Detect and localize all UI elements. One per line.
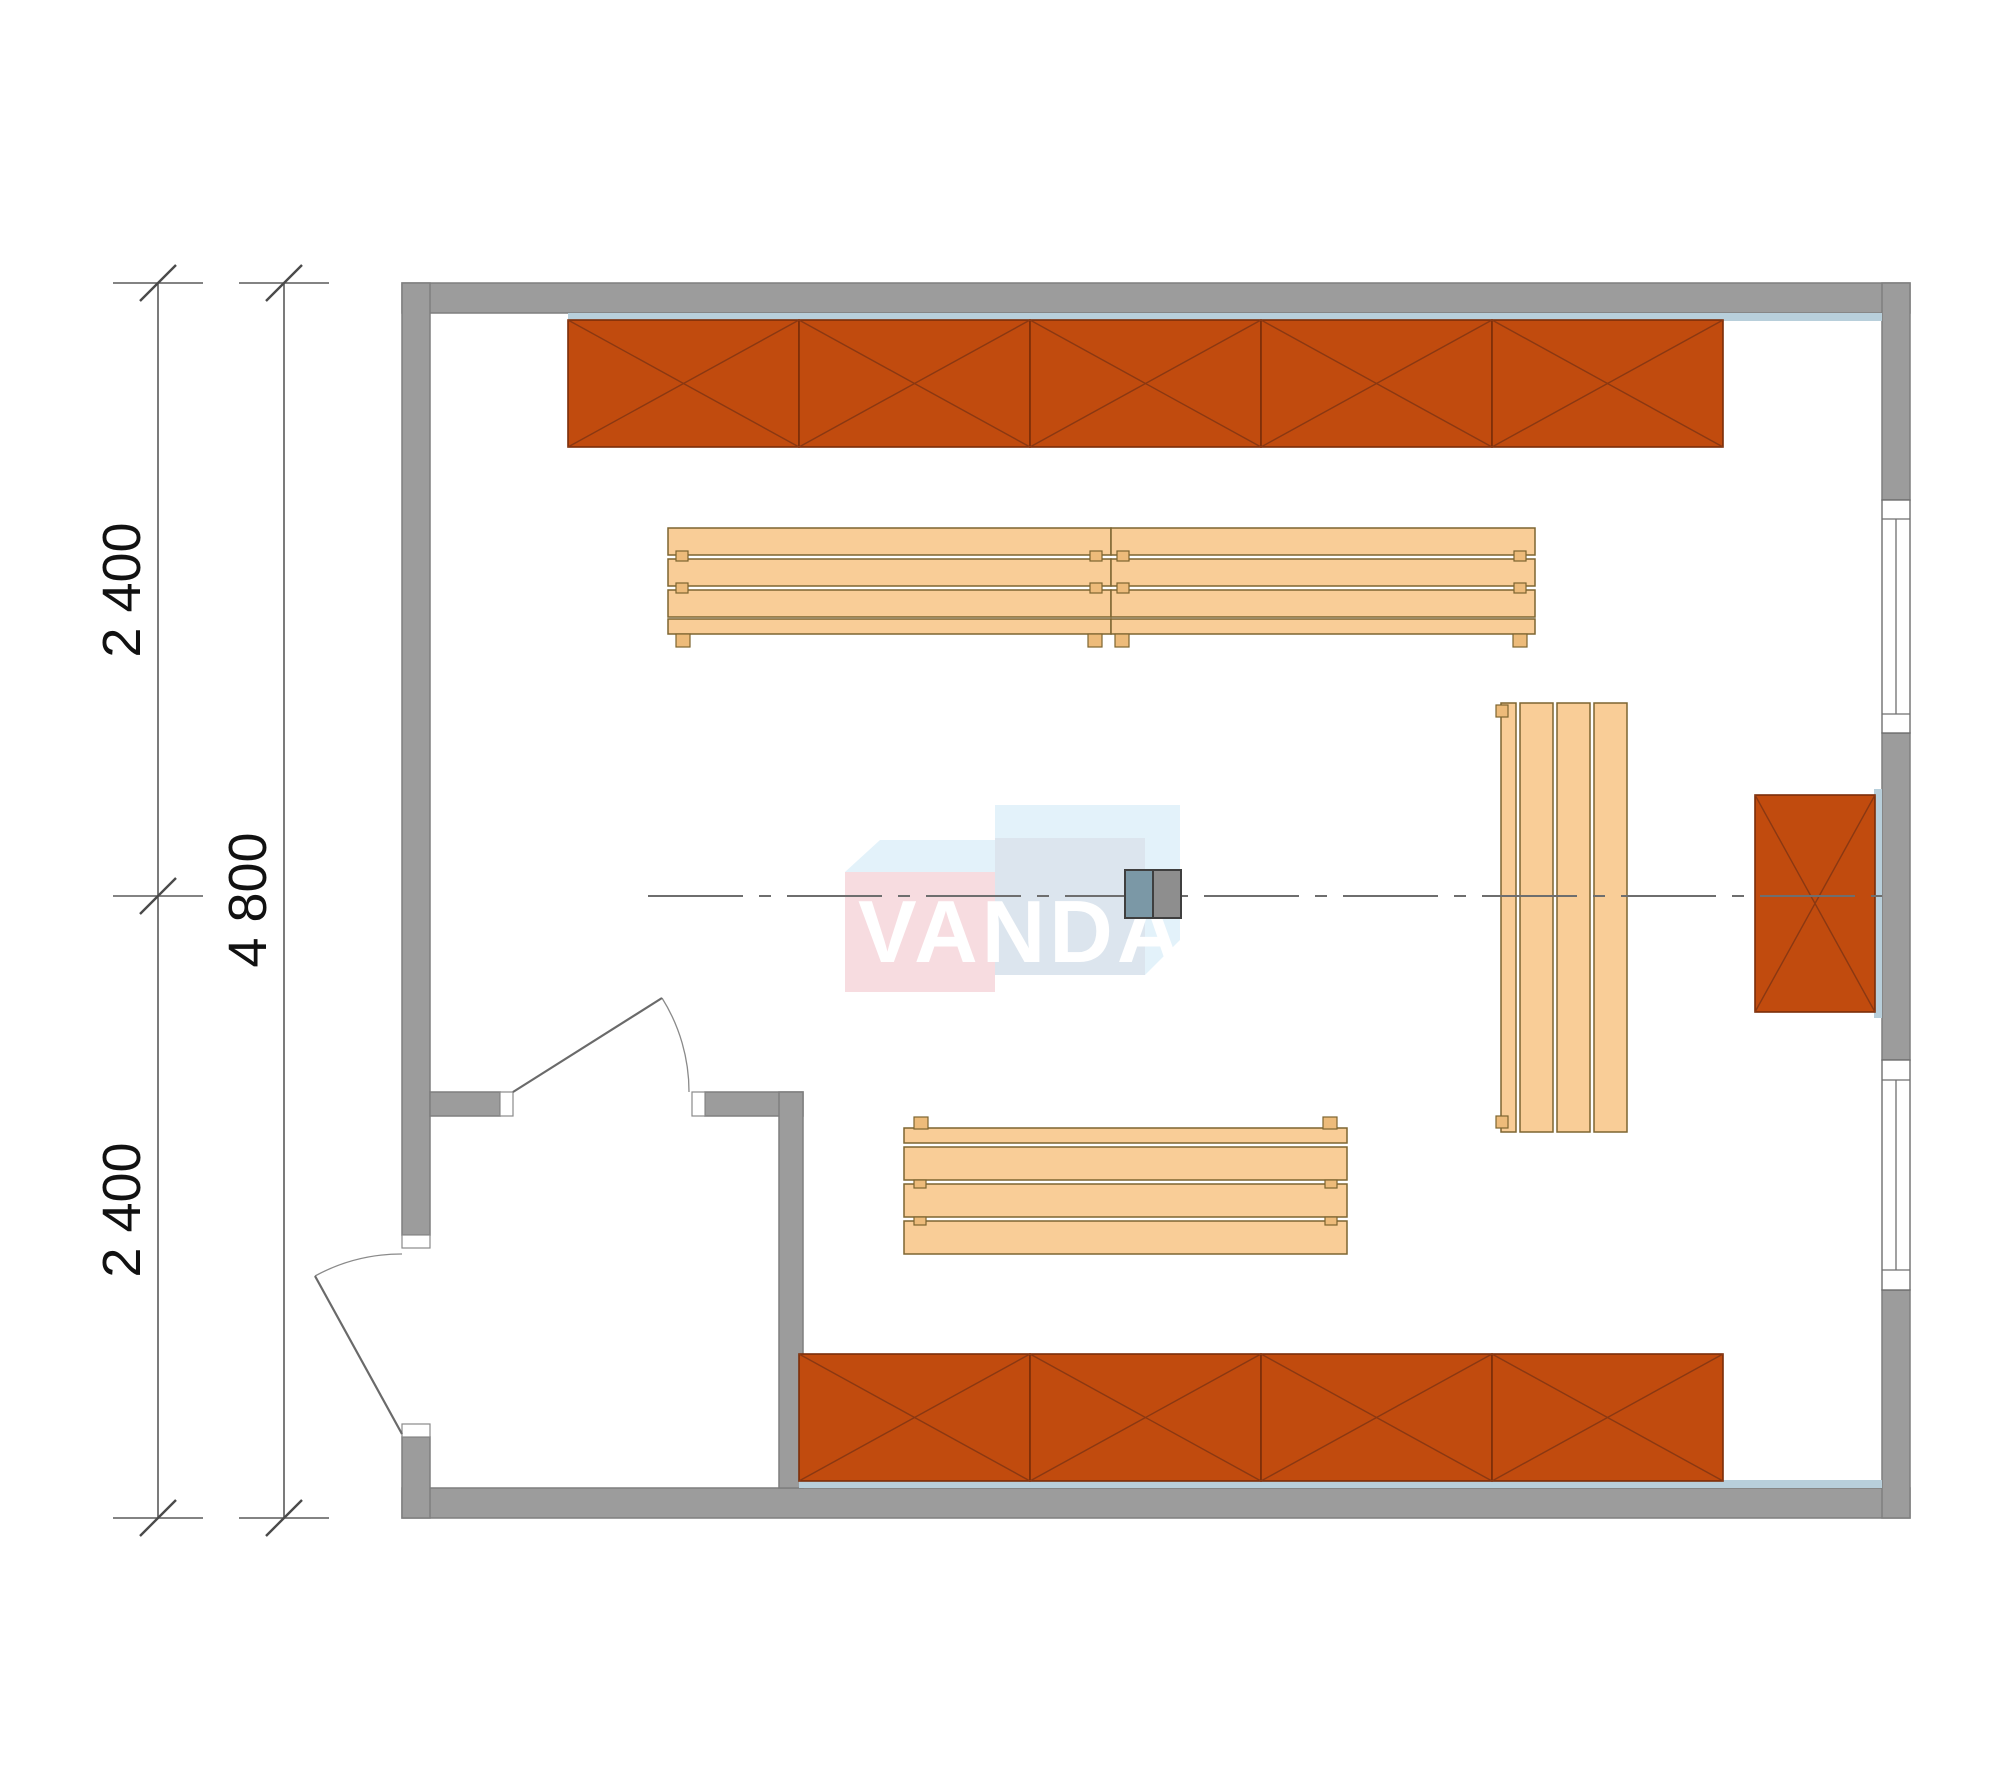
dimension-label-total: 4 800: [218, 832, 278, 967]
wall-right-middle: [1882, 733, 1910, 1060]
window-lower: [1882, 1060, 1910, 1290]
wall-right-upper: [1882, 283, 1910, 500]
shelving: [568, 320, 1875, 1481]
bench-back-rail: [904, 1128, 1347, 1143]
bench-top-right: [1111, 528, 1535, 634]
door-leaf: [513, 998, 662, 1092]
doors: [315, 998, 705, 1437]
wall-left: [402, 283, 430, 1235]
door-swing-arc: [315, 1254, 402, 1276]
bench-slat: [668, 528, 1111, 555]
floor-plan-canvas: 2 400 4 800 2 400: [0, 0, 2000, 1786]
shelving-row-bottom: [799, 1354, 1723, 1481]
wall-vestibule-left: [430, 1092, 500, 1116]
bench-back-rail: [1111, 619, 1535, 634]
dimension-lines: 2 400 4 800 2 400: [92, 265, 329, 1536]
wall-liners: [568, 313, 1882, 1488]
bench-back-rail: [668, 619, 1111, 634]
heater-left-half: [1125, 870, 1153, 918]
door-jamb: [500, 1092, 513, 1116]
dimension-label-upper: 2 400: [92, 522, 152, 657]
interior-door: [500, 998, 705, 1116]
wall-left-stub: [402, 1437, 430, 1518]
shelving-row-top: [568, 320, 1723, 447]
floor-plan-drawing: 2 400 4 800 2 400: [0, 0, 2000, 1786]
wall-bottom: [402, 1488, 1910, 1518]
bench-bottom: [904, 1128, 1347, 1254]
bench-slat: [668, 559, 1111, 586]
bench-slat: [1557, 703, 1590, 1132]
bench-slat: [1111, 590, 1535, 617]
bench-top-left: [668, 528, 1111, 634]
bench-slat: [1111, 528, 1535, 555]
door-jamb: [692, 1092, 705, 1116]
shelving-right-block: [1755, 795, 1875, 1012]
heater-right-half: [1153, 870, 1181, 918]
bench-right-vertical: [1501, 703, 1627, 1132]
bench-slat: [904, 1184, 1347, 1217]
dimension-label-lower: 2 400: [92, 1142, 152, 1277]
door-swing-arc: [662, 998, 689, 1092]
door-jamb: [402, 1235, 430, 1248]
bench-slat: [1594, 703, 1627, 1132]
bench-slat: [1111, 559, 1535, 586]
window-upper: [1882, 500, 1910, 733]
bench-slat: [1520, 703, 1553, 1132]
wall-top: [402, 283, 1910, 313]
door-jamb: [402, 1424, 430, 1437]
bench-slat: [904, 1147, 1347, 1180]
bench-slat: [668, 590, 1111, 617]
wall-right-lower: [1882, 1290, 1910, 1518]
heater-block: [1125, 870, 1181, 918]
bench-back-rail: [1501, 703, 1516, 1132]
bench-slat: [904, 1221, 1347, 1254]
door-leaf: [315, 1276, 402, 1434]
exterior-door: [315, 1235, 430, 1437]
